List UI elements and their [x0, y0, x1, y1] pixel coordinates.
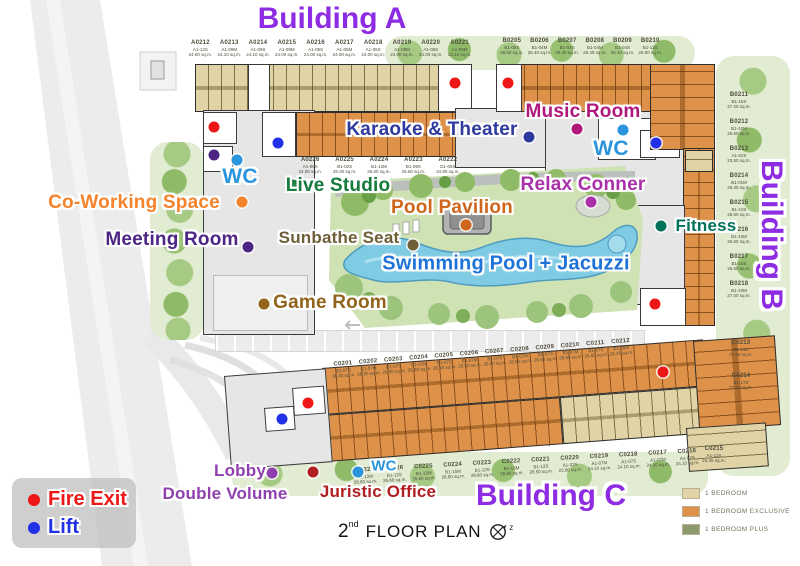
building-b-tan-unit	[685, 150, 713, 172]
bedroom-exclusive-label: 1 BEDROOM EXCLUSIVE	[705, 508, 790, 515]
unit-label: C0210B1-07M26.50 sq.m.	[557, 342, 584, 361]
building-b-corner-units	[650, 64, 715, 150]
unit-label: C0205B1-07S26.50 sq.m.	[431, 352, 458, 371]
legend-fire-exit: Fire Exit	[28, 488, 127, 511]
unit-label: A0215A1-09M24.00 sq.m.	[272, 40, 301, 57]
pool-pavilion-dot	[461, 220, 472, 231]
label-wc-c: WC	[371, 458, 396, 475]
fire-exit-dot	[450, 78, 461, 89]
unit-label: C0219A1-07M24.10 sq.m.	[584, 453, 614, 471]
unit-label: C0214B1-17S27.30 sq.m.	[716, 373, 766, 406]
unit-label: C0218A1-07S24.10 sq.m.	[614, 451, 644, 469]
unit-label-c0215: C0215A1-11S24.40 sq.m.	[690, 446, 738, 463]
fire-exit-dot	[503, 78, 514, 89]
unit-label: A0220A1-05S24.00 sq.m.	[416, 40, 445, 57]
relax-conner-dot	[586, 197, 597, 208]
unit-label: C0221B1-12S26.50 sq.m.	[526, 456, 556, 474]
lift-dot	[277, 414, 288, 425]
label-game-room: Game Room	[273, 292, 387, 314]
unit-label: C0208B1-07M26.50 sq.m.	[507, 346, 534, 365]
unit-label: A0223B1-09S26.50 sq.m.	[396, 157, 430, 174]
sunbathe-seat-dot	[408, 240, 419, 251]
unit-label: A0214A1-09S24.10 sq.m.	[244, 40, 273, 57]
unit-label: C0203B1-07S26.50 sq.m.	[380, 356, 407, 375]
juristic-office-dot	[308, 467, 319, 478]
unit-label: B0212B1-10M26.50 sq.m.	[716, 119, 762, 146]
unit-label: C0211B1-07S26.50 sq.m.	[582, 340, 609, 359]
unit-label: B0211B1-15S27.20 sq.m.	[716, 92, 762, 119]
unit-label: B0210B1-13S26.80 sq.m.	[636, 38, 664, 55]
unit-label: B0205B1-06S26.50 sq.m.	[498, 38, 526, 55]
unit-label: C0225B1-12M26.60 sq.m.	[409, 463, 439, 481]
floor-plan-canvas: A0212A1-12S24.60 sq.m.A0213A1-09M24.10 s…	[0, 0, 800, 566]
lift-dot	[273, 138, 284, 149]
fitness-dot	[656, 221, 667, 232]
title-building-a: Building A	[258, 2, 407, 36]
unit-label: C0206B1-07M26.50 sq.m.	[456, 350, 483, 369]
unit-label: C0215A1-11S24.40 sq.m.	[690, 446, 738, 463]
unit-label: C0202B1-07M26.50 sq.m.	[355, 358, 382, 377]
unit-label: A0217A1-05M24.00 sq.m.	[330, 40, 359, 57]
unit-label: C0222B1-15M26.80 sq.m.	[496, 458, 526, 476]
building-b-wing-units	[683, 148, 715, 326]
label-juristic-office: Juristic Office	[320, 482, 436, 502]
unit-labels-a-top: A0212A1-12S24.60 sq.m.A0213A1-09M24.10 s…	[186, 40, 474, 57]
legend-1-bedroom: 1 BEDROOM	[682, 488, 790, 499]
unit-label: A0221A1-09M24.10 sq.m.	[445, 40, 474, 57]
building-a-stair-core	[248, 64, 270, 112]
unit-label: A0213A1-09M24.10 sq.m.	[215, 40, 244, 57]
unit-label: C0213B1-14S27.00 sq.m.	[716, 340, 766, 373]
bedroom-plus-swatch	[682, 524, 700, 535]
unit-label: C0212B1-20M26.40 sq.m.	[608, 338, 635, 357]
label-live-studio: Live Studio	[286, 175, 391, 197]
unit-labels-a-row2: A0226A1-06S24.00 sq.m.A0225B1-02S26.30 s…	[293, 157, 465, 174]
bedroom-label: 1 BEDROOM	[705, 490, 748, 497]
unit-labels-b-top: B0205B1-06S26.50 sq.m.B0206B1-04M26.40 s…	[498, 38, 664, 55]
building-a-strip	[195, 64, 472, 112]
fire-exit-dot	[303, 398, 314, 409]
unit-label: A0222D1-05S34.90 sq.m.	[431, 157, 465, 174]
lobby-dot	[267, 468, 278, 479]
game-room-dot	[259, 299, 270, 310]
marker-dot	[209, 150, 220, 161]
bedroom-exclusive-swatch	[682, 506, 700, 517]
label-swimming-pool: Swimming Pool + Jacuzzi	[382, 253, 629, 276]
fire-exit-dot	[650, 299, 661, 310]
floor-ordinal: nd	[349, 519, 359, 529]
unit-label: A0225B1-02S26.30 sq.m.	[327, 157, 361, 174]
floor-plan-title: 2 nd FLOOR PLAN z	[338, 521, 513, 543]
music-room-dot	[572, 124, 583, 135]
unit-label: A0219A1-05M24.00 sq.m.	[388, 40, 417, 57]
unit-label: B0207B1-04S26.40 sq.m.	[553, 38, 581, 55]
unit-label: A0226A1-06S24.00 sq.m.	[293, 157, 327, 174]
label-music-room: Music Room	[526, 101, 641, 123]
legend-lift: Lift	[28, 516, 79, 539]
meeting-room-dot	[243, 242, 254, 253]
lift-legend-label: Lift	[48, 516, 79, 539]
building-a-lift-core	[262, 112, 296, 157]
label-wc-b: WC	[593, 137, 628, 161]
label-meeting-room: Meeting Room	[105, 229, 238, 251]
label-wc-a: WC	[222, 165, 257, 189]
unit-labels-c-right: C0213B1-14S27.00 sq.m.C0214B1-17S27.30 s…	[716, 340, 766, 406]
label-fitness: Fitness	[676, 216, 737, 236]
compass-z-label: z	[509, 523, 513, 532]
label-relax-conner: Relax Conner	[521, 174, 646, 196]
fire-exit-dot	[209, 122, 220, 133]
label-sunbathe-seat: Sunbathe Seat	[279, 228, 400, 248]
unit-label: C0209B1-07S26.50 sq.m.	[532, 344, 559, 363]
wc-dot	[618, 125, 629, 136]
floor-number: 2	[338, 521, 349, 543]
label-karaoke-theater: Karaoke & Theater	[346, 119, 517, 141]
unit-label: B0208B1-04M26.40 sq.m.	[581, 38, 609, 55]
label-lobby: Lobby	[214, 461, 266, 481]
fire-exit-legend-dot	[28, 494, 40, 506]
fire-exit-legend-label: Fire Exit	[48, 488, 127, 511]
unit-label: B0206B1-04M26.40 sq.m.	[526, 38, 554, 55]
unit-label: B0209B1-04S26.40 sq.m.	[609, 38, 637, 55]
marker-legend: Fire Exit Lift	[12, 478, 136, 548]
unit-type-legend: 1 BEDROOM 1 BEDROOM EXCLUSIVE 1 BEDROOM …	[682, 488, 790, 535]
bedroom-plus-label: 1 BEDROOM PLUS	[705, 526, 768, 533]
title-building-b: Building B	[754, 160, 788, 310]
unit-label: C0220A1-02S23.80 sq.m.	[555, 454, 585, 472]
legend-1-bedroom-exclusive: 1 BEDROOM EXCLUSIVE	[682, 506, 790, 517]
label-pool-pavilion: Pool Pavilion	[391, 197, 513, 219]
bedroom-swatch	[682, 488, 700, 499]
karaoke-theater-dot	[524, 132, 535, 143]
label-double-volume: Double Volume	[162, 484, 287, 504]
unit-label: C0204B1-07M26.50 sq.m.	[406, 354, 433, 373]
unit-label: A0224B1-12M26.60 sq.m.	[362, 157, 396, 174]
legend-1-bedroom-plus: 1 BEDROOM PLUS	[682, 524, 790, 535]
lift-legend-dot	[28, 522, 40, 534]
lift-dot	[651, 138, 662, 149]
unit-label: A0216A1-05S24.00 sq.m.	[301, 40, 330, 57]
co-working-dot	[237, 197, 248, 208]
unit-label: C0223B1-12S26.80 sq.m.	[467, 460, 497, 478]
wc-dot	[232, 155, 243, 166]
building-b-bottom-core	[640, 288, 686, 326]
compass-icon: z	[489, 523, 513, 542]
floor-plan-text: FLOOR PLAN	[366, 522, 482, 542]
unit-label: C0207B1-07S26.50 sq.m.	[481, 348, 508, 367]
unit-label: C0224B1-15M26.60 sq.m.	[438, 461, 468, 479]
unit-label: C0201B1-07S26.40 sq.m.	[330, 360, 357, 379]
fire-exit-dot	[658, 367, 669, 378]
title-building-c: Building C	[476, 479, 626, 513]
unit-label: A0218A1-05S24.00 sq.m.	[359, 40, 388, 57]
label-co-working-space: Co-Working Space	[48, 192, 220, 214]
unit-label: A0212A1-12S24.60 sq.m.	[186, 40, 215, 57]
wc-dot	[353, 467, 364, 478]
unit-label: C0217A1-07M24.10 sq.m.	[643, 449, 673, 467]
